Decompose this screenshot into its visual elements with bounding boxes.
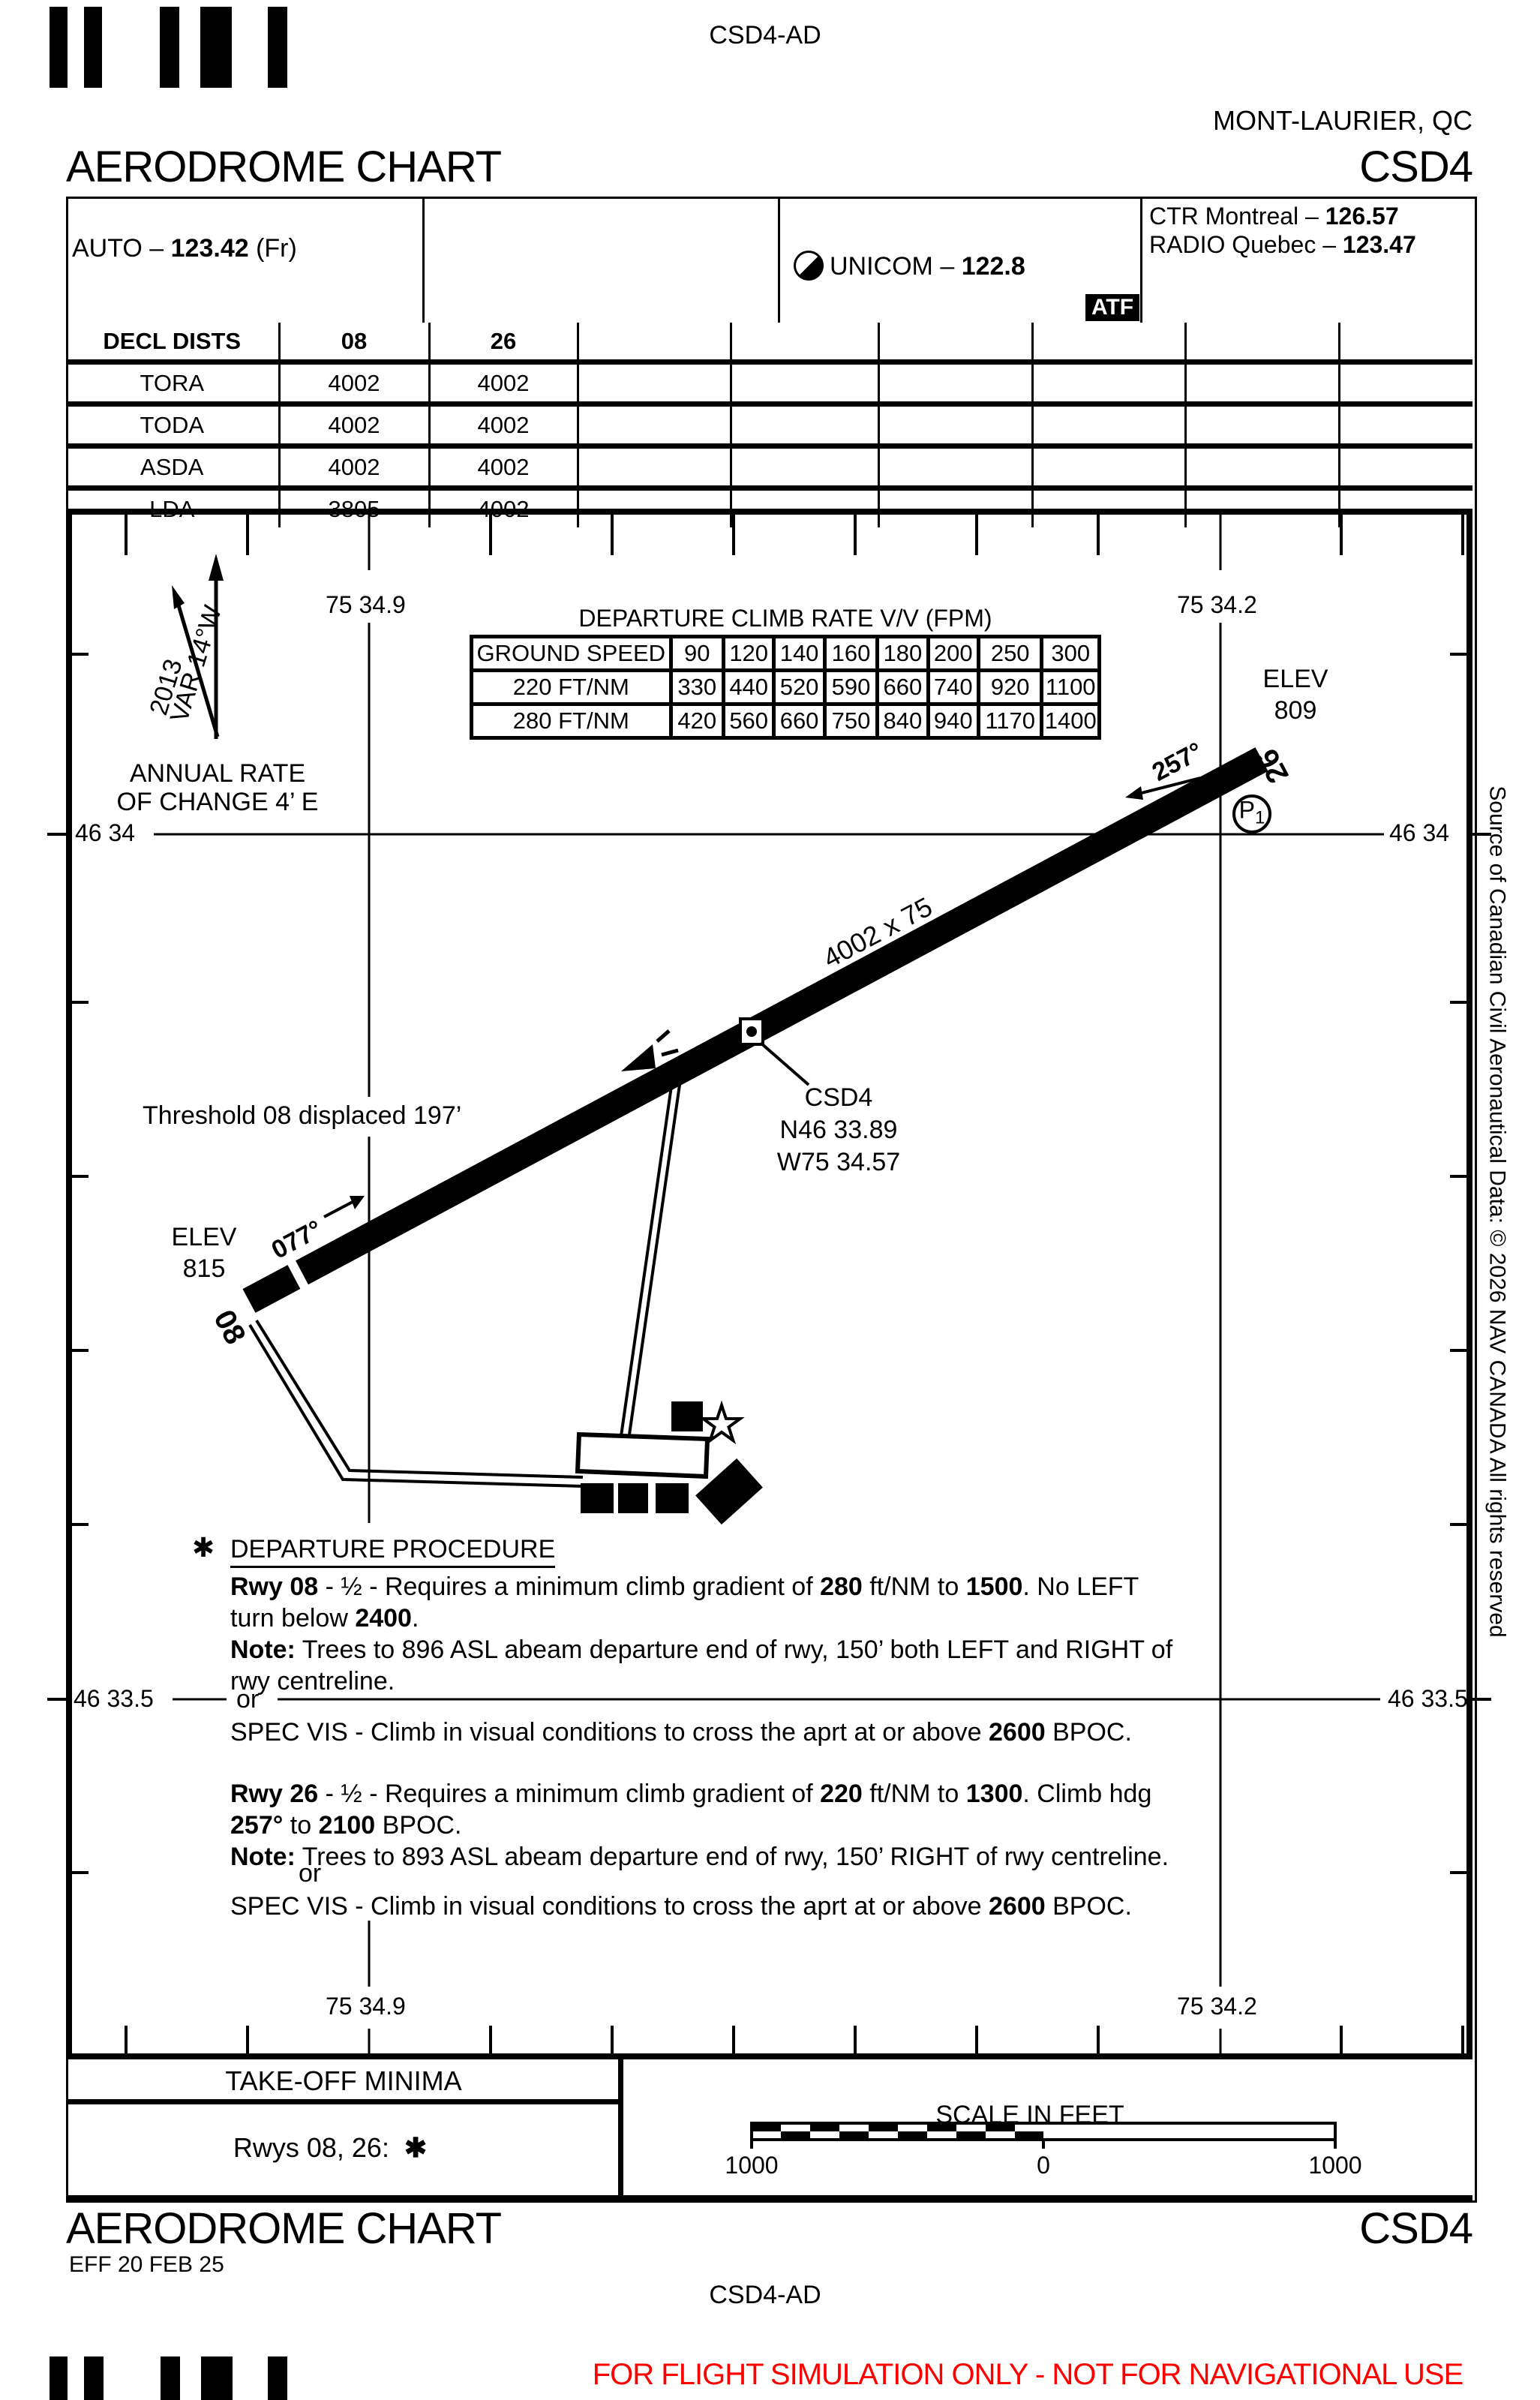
arp-id: CSD4 (805, 1083, 873, 1113)
aerodrome-chart-page: CSD4-AD MONT-LAURIER, QC AERODROME CHART… (0, 0, 1540, 2400)
latitude-label-left-bottom: 46 33.5 (74, 1685, 154, 1713)
table-row: 280 FT/NM42056066075084094011701400 (472, 704, 1100, 738)
elev-08-value: 815 (183, 1254, 226, 1284)
takeoff-minima-entry: Rwys 08, 26: ✱ (233, 2132, 427, 2163)
parking-symbol-label: P1 (1239, 796, 1265, 828)
takeoff-minima-title: TAKE-OFF MINIMA (225, 2065, 461, 2096)
climb-table-title: DEPARTURE CLIMB RATE V/V (FPM) (578, 605, 992, 632)
rwy08-note-line1: Note: Trees to 896 ASL abeam departure e… (230, 1636, 1172, 1665)
simulation-disclaimer: FOR FLIGHT SIMULATION ONLY - NOT FOR NAV… (593, 2357, 1463, 2392)
scale-label-mid: 0 (1037, 2152, 1050, 2179)
doc-code-bottom: CSD4-AD (709, 2281, 821, 2310)
elev-26-label: ELEV (1263, 665, 1328, 694)
longitude-label-top-right: 75 34.2 (1177, 591, 1257, 619)
table-row: GROUND SPEED90120140160180200250300 (472, 637, 1100, 671)
departure-asterisk: ✱ (192, 1532, 215, 1563)
elev-26-value: 809 (1274, 696, 1317, 725)
rwy08-spec-vis: SPEC VIS - Climb in visual conditions to… (230, 1718, 1132, 1747)
arp-longitude: W75 34.57 (777, 1148, 900, 1177)
longitude-label-bottom-left: 75 34.9 (326, 1993, 406, 2020)
longitude-label-bottom-right: 75 34.2 (1177, 1993, 1257, 2020)
climb-rate-table: GROUND SPEED90120140160180200250300 220 … (470, 635, 1101, 740)
arp-latitude: N46 33.89 (780, 1116, 898, 1145)
scale-bar-title: SCALE IN FEET (935, 2101, 1124, 2130)
footer-title: AERODROME CHART (66, 2204, 501, 2254)
latitude-label-right-bottom: 46 33.5 (1388, 1685, 1468, 1713)
departure-title: DEPARTURE PROCEDURE (230, 1535, 555, 1564)
rwy26-spec-vis: SPEC VIS - Climb in visual conditions to… (230, 1892, 1132, 1921)
beacon-star-icon (703, 1405, 740, 1440)
table-row: 220 FT/NM3304405205906607409201100 (472, 671, 1100, 704)
latitude-label-left-top: 46 34 (75, 819, 135, 847)
effective-date: EFF 20 FEB 25 (69, 2252, 224, 2278)
rwy26-procedure-line2: 257° to 2100 BPOC. (230, 1811, 461, 1840)
latitude-label-right-top: 46 34 (1389, 819, 1449, 847)
apron (578, 1434, 707, 1476)
annual-rate-line1: ANNUAL RATE (130, 759, 305, 788)
scale-label-right: 1000 (1308, 2152, 1361, 2179)
rwy08-procedure-line2: turn below 2400. (230, 1604, 419, 1633)
footer-chart-code: CSD4 (1359, 2204, 1472, 2254)
taxiways (250, 1085, 680, 1486)
elev-08-label: ELEV (172, 1223, 237, 1252)
map-linework (0, 0, 1540, 2400)
threshold-note: Threshold 08 displaced 197’ (143, 1101, 461, 1131)
arp-leader-line (761, 1043, 809, 1085)
longitude-label-top-left: 75 34.9 (326, 591, 406, 619)
annual-rate-line2: OF CHANGE 4’ E (117, 788, 319, 817)
rwy08-heading-arrow (324, 1196, 365, 1217)
scale-label-left: 1000 (725, 2152, 778, 2179)
or-separator-1: or (236, 1685, 259, 1714)
or-separator-2: or (299, 1859, 321, 1888)
rwy26-note-line1: Note: Trees to 893 ASL abeam departure e… (230, 1843, 1169, 1872)
rwy26-procedure-line1: Rwy 26 - ½ - Requires a minimum climb gr… (230, 1780, 1151, 1809)
rwy08-procedure-line1: Rwy 08 - ½ - Requires a minimum climb gr… (230, 1572, 1139, 1602)
source-note: Source of Canadian Civil Aeronautical Da… (1484, 785, 1510, 1637)
